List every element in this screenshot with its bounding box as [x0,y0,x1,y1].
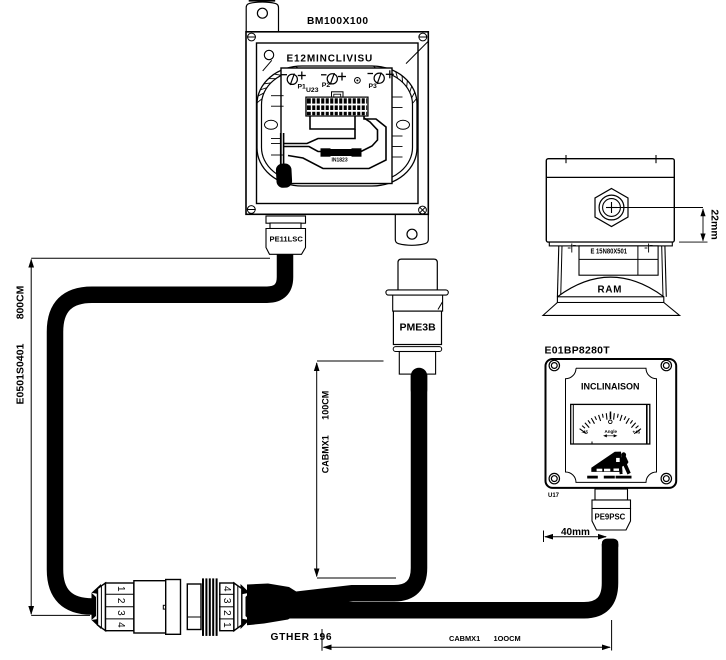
svg-text:40mm: 40mm [561,527,590,538]
svg-text:2: 2 [115,598,126,604]
svg-text:1OOCM: 1OOCM [494,634,521,643]
svg-text:U17: U17 [548,493,560,499]
svg-text:2: 2 [221,610,232,616]
svg-text:Angle: Angle [605,429,618,434]
svg-text:22mm: 22mm [709,209,721,239]
svg-text:3: 3 [221,598,232,604]
svg-text:RAM: RAM [598,285,623,296]
svg-text:+45: +45 [633,430,641,435]
svg-text:P3: P3 [369,83,378,90]
svg-text:4: 4 [221,586,232,592]
svg-text:PME3B: PME3B [400,322,437,334]
svg-text:CABMX1: CABMX1 [321,435,331,473]
svg-text:1: 1 [221,622,232,628]
svg-text:3: 3 [115,610,126,616]
svg-text:-45: -45 [582,430,589,435]
svg-text:E 15N80X501: E 15N80X501 [591,248,628,256]
svg-text:INCLINAISON: INCLINAISON [581,382,640,392]
svg-text:BM100X100: BM100X100 [307,16,369,27]
svg-text:PE9PSC: PE9PSC [595,513,626,522]
svg-text:E0501S0401: E0501S0401 [16,343,27,404]
svg-text:IN1823: IN1823 [332,158,348,164]
svg-text:1: 1 [115,586,126,592]
svg-text:4: 4 [115,622,126,628]
svg-text:E12MINCLIVISU: E12MINCLIVISU [287,54,374,65]
svg-text:GTHER 196: GTHER 196 [271,632,333,643]
svg-text:100CM: 100CM [321,391,331,420]
svg-text:800CM: 800CM [16,286,27,320]
svg-text:CABMX1: CABMX1 [449,634,480,643]
svg-text:U23: U23 [306,87,319,94]
svg-text:P1: P1 [298,83,307,90]
svg-text:P2: P2 [322,82,331,89]
svg-text:E01BP8280T: E01BP8280T [545,346,611,357]
svg-text:PE11LSC: PE11LSC [270,235,304,244]
